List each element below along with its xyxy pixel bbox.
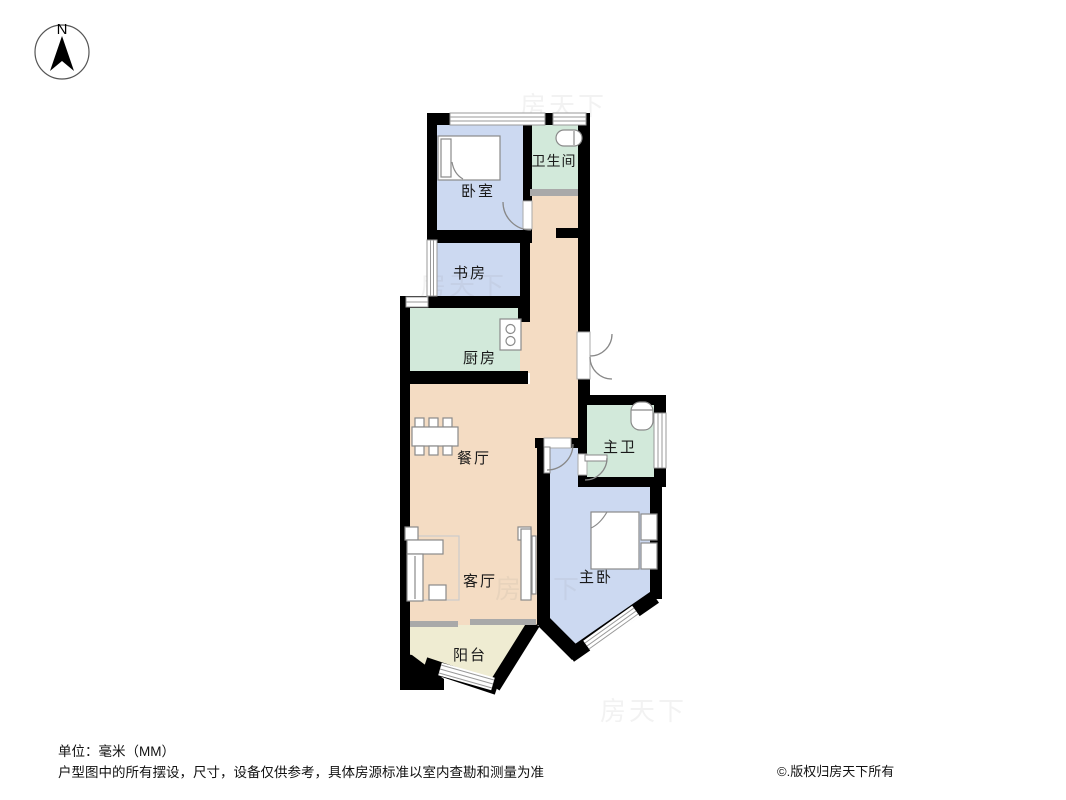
unit-note: 单位：毫米（MM） — [58, 741, 544, 762]
wall-kitchen-bottom — [400, 371, 528, 384]
kitchen-label: 厨房 — [463, 350, 497, 367]
wall-bedroom-bottom — [427, 230, 532, 243]
disclaimer-note: 户型图中的所有摆设，尺寸，设备仅供参考，具体房源标准以室内查勘和测量为准 — [58, 762, 544, 783]
balcony-label: 阳台 — [453, 647, 487, 664]
wall-study-bottom — [427, 296, 525, 308]
bedroom-label: 卧室 — [461, 183, 495, 200]
kitchen-step-window — [406, 297, 428, 307]
north-arrow-icon — [50, 36, 74, 71]
wall-hall-stub — [556, 228, 590, 238]
master-bath-label: 主卫 — [603, 439, 637, 456]
wall-mbath-left-lower — [578, 475, 587, 487]
compass: N — [35, 21, 89, 79]
toilet — [631, 402, 653, 430]
study-label: 书房 — [453, 265, 487, 282]
tv-cabinet — [518, 527, 536, 600]
footer-notes: 单位：毫米（MM） 户型图中的所有摆设，尺寸，设备仅供参考，具体房源标准以室内查… — [58, 741, 544, 783]
stove — [500, 319, 521, 350]
wall-right-upper — [578, 113, 590, 333]
wall-left-main — [400, 306, 410, 666]
balcony-slider-right — [470, 619, 536, 625]
study-window — [427, 240, 437, 296]
floorplan-svg: N 房天下 房天下 房天下 房天下 — [0, 0, 1066, 800]
watermark-text: 房天下 — [600, 696, 687, 726]
bathroom-window — [553, 113, 586, 125]
wall-kitchen-right-stub — [518, 296, 530, 322]
bedroom-window — [450, 113, 545, 125]
bathroom-label: 卫生间 — [532, 153, 577, 169]
master-bed — [591, 512, 657, 569]
floorplan-page: N 房天下 房天下 房天下 房天下 — [0, 0, 1066, 800]
dining-table — [412, 418, 458, 455]
copyright-note: ©.版权归房天下所有 — [777, 761, 894, 780]
master-bath-window — [654, 413, 666, 468]
balcony-slider-left — [410, 621, 458, 627]
compass-north-label: N — [57, 21, 68, 38]
living-label: 客厅 — [463, 573, 497, 590]
bed — [438, 136, 500, 180]
bathroom-threshold — [530, 189, 578, 196]
wall-study-right — [520, 243, 530, 305]
master-bedroom-label: 主卧 — [579, 569, 613, 586]
wall-left-upper — [427, 113, 437, 243]
dining-label: 餐厅 — [457, 450, 491, 467]
wall-mbath-top — [578, 395, 666, 405]
sink — [556, 130, 582, 146]
entry-double-door — [577, 332, 612, 379]
